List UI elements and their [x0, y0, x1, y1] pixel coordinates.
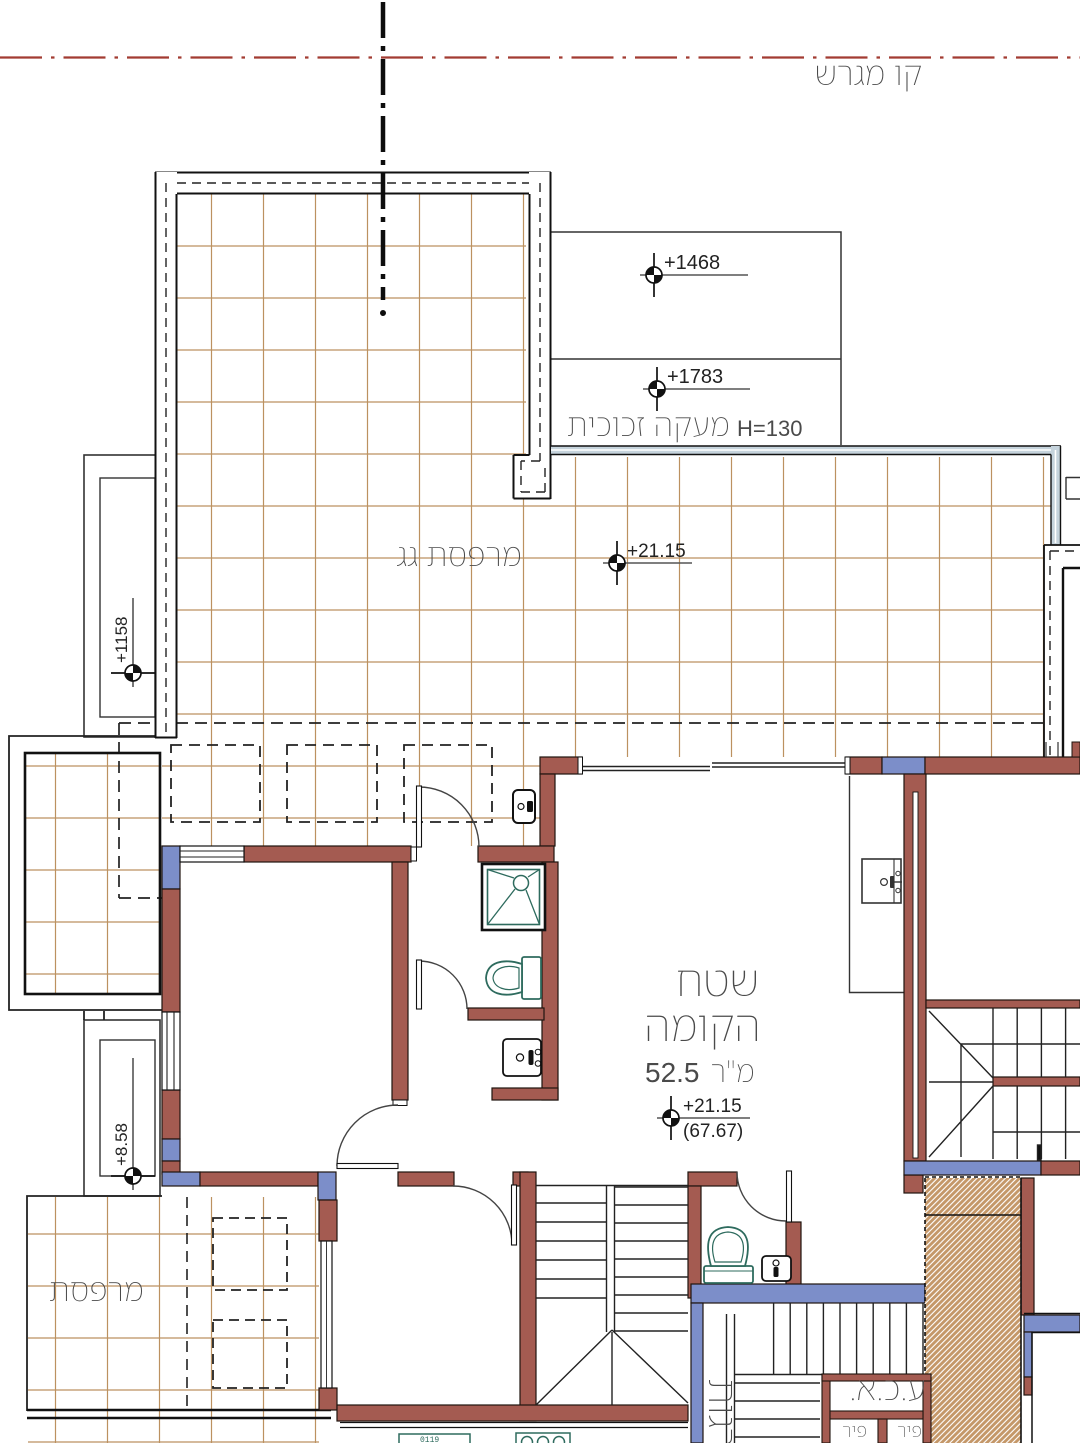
- svg-text:+21.15: +21.15: [683, 1096, 742, 1117]
- svg-text:+1468: +1468: [664, 252, 720, 274]
- svg-text:+21.15: +21.15: [627, 541, 686, 562]
- svg-text:+8.58: +8.58: [112, 1123, 131, 1166]
- svg-text:H=130: H=130: [737, 416, 802, 441]
- svg-text:(67.67): (67.67): [683, 1121, 743, 1142]
- svg-text:0119: 0119: [420, 1436, 439, 1443]
- svg-text:52.5: 52.5: [645, 1057, 700, 1088]
- svg-text:+1158: +1158: [112, 617, 131, 663]
- svg-text:+1783: +1783: [667, 366, 723, 388]
